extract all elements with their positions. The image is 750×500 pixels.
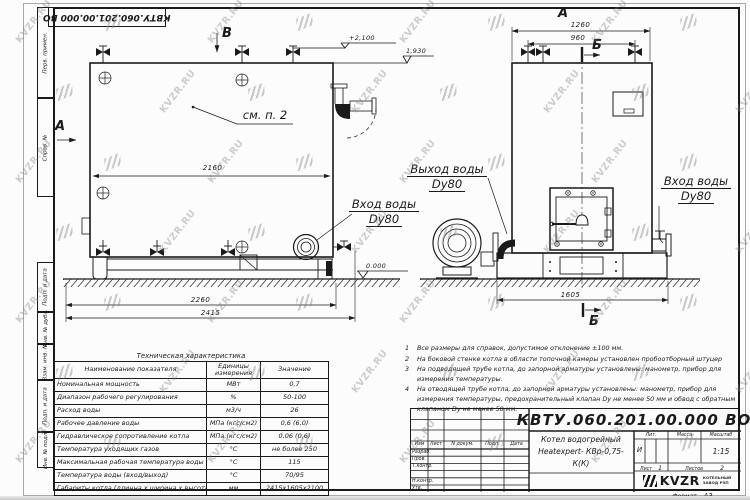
scale-label: Масштаб xyxy=(701,433,741,438)
title-block-doc-number: КВТУ.060.201.00.000 ВО xyxy=(529,409,739,430)
sheet-cell: Лист 1 xyxy=(634,465,668,472)
lit-value: И xyxy=(634,446,645,454)
col-ndoc: N докум. xyxy=(444,442,481,447)
spec-row: Габариты котла (длинна х ширина х высота… xyxy=(55,483,329,496)
title-block: КВТУ.060.201.00.000 ВО Изм Лист N докум.… xyxy=(410,408,740,491)
margin-box-inv-dubl: Инв. № дубл. xyxy=(37,312,54,344)
sign-row-nkontr: Н.контр. xyxy=(412,479,443,484)
scale-value: 1:15 xyxy=(701,447,741,456)
company-logo: KVZR КОТЕЛЬНЫЙ ЗАВОД РЭП xyxy=(636,472,738,489)
spec-col-name: Наименование показателя xyxy=(55,362,207,379)
spec-table: Наименование показателя Единицы измерени… xyxy=(54,361,329,496)
spec-row: Температура воды (вход/выход)°С70/95 xyxy=(55,470,329,483)
note-item: 3На подводящей трубе котла, до запорной … xyxy=(405,365,738,384)
spec-table-title: Техническая характеристика xyxy=(54,352,328,360)
spec-col-unit: Единицы измерения xyxy=(207,362,261,379)
lit-label: Лит. xyxy=(634,433,668,438)
col-izm: Изм xyxy=(411,442,428,447)
col-data: Дата xyxy=(504,442,529,447)
note-item: 2На боковой стенке котла в области топоч… xyxy=(405,355,738,365)
col-podp: Подп. xyxy=(481,442,504,447)
sheet-edge xyxy=(0,496,750,500)
margin-box-sprav-no: Справ. № xyxy=(37,98,54,197)
brand-name: KVZR xyxy=(660,473,700,488)
spec-row: Номинальная мощностьМВт0,7 xyxy=(55,379,329,392)
sign-row-tkontr: Т.контр. xyxy=(412,464,443,469)
spec-row: Гидравлическое сопротивление котлаМПа (к… xyxy=(55,431,329,444)
sign-row-prov: Пров. xyxy=(412,457,443,462)
sheets-cell: Листов 2 xyxy=(668,465,741,472)
margin-box-podp-data-1: Подп. и дата xyxy=(37,262,54,312)
note-item: 1Все размеры для справок, допустимое отк… xyxy=(405,344,738,354)
spec-row: Диапазон рабочего регулирования%50-100 xyxy=(55,392,329,405)
margin-box-inv-podl: Инв. № подл. xyxy=(37,432,54,468)
spec-row: Рабочее давление водыМПа (кгс/см2)0,6 (6… xyxy=(55,418,329,431)
mass-label: Масса xyxy=(668,433,701,438)
sign-row-utv: Утв. xyxy=(412,486,443,491)
spec-row: Максимальная рабочая температура воды°С1… xyxy=(55,457,329,470)
brand-subtitle: КОТЕЛЬНЫЙ ЗАВОД РЭП xyxy=(703,476,732,485)
spec-col-value: Значение xyxy=(261,362,329,379)
spec-row: Расход водым3/ч26 xyxy=(55,405,329,418)
sign-row-razrab: Разраб. xyxy=(412,450,443,455)
top-rotated-doc-number: КВТУ.060.201.00.000 ВО xyxy=(48,7,166,27)
notes-list: 1Все размеры для справок, допустимое отк… xyxy=(405,344,738,415)
margin-box-vzam-inv: Взам. инв. № xyxy=(37,344,54,380)
col-list: Лист xyxy=(428,442,444,447)
spec-header-row: Наименование показателя Единицы измерени… xyxy=(55,362,329,379)
product-name: Котел водогрейный Heatexpert- КВр-0,75- … xyxy=(530,434,632,470)
drawing-sheet: А В А Б Б 2160 2260 2415 1260 960 1605 +… xyxy=(0,0,750,500)
spec-row: Температура уходящих газов°Сне более 250 xyxy=(55,444,329,457)
margin-box-podp-data-2: Подп. и дата xyxy=(37,380,54,432)
kvzr-logo-icon xyxy=(643,475,657,487)
